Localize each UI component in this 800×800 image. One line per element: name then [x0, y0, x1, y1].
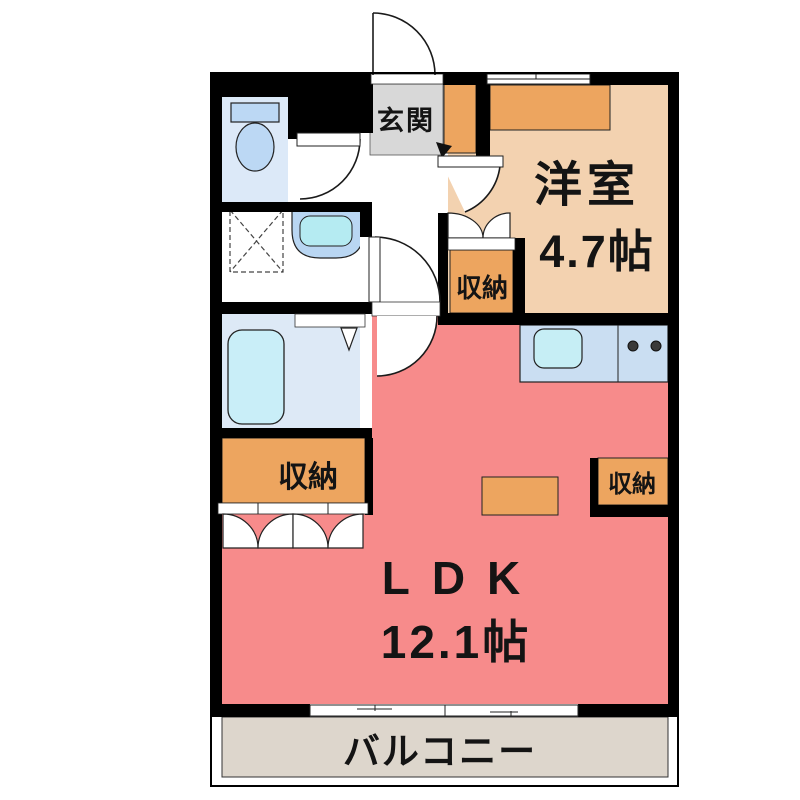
toilet-tank-icon	[231, 103, 279, 122]
kitchen-counter	[520, 325, 668, 382]
ldk-label: LDK	[382, 552, 543, 604]
closet-hall-label: 収納	[456, 273, 508, 303]
ldk-doorway	[372, 302, 440, 316]
wall	[590, 505, 668, 517]
washroom-door-leaf	[369, 237, 380, 302]
kitchen-sink-icon	[534, 329, 582, 368]
toilet-doorway	[288, 139, 300, 202]
kitchen-cabinet	[482, 477, 558, 515]
closet-west-folding-door	[218, 503, 368, 548]
western-room-label: 洋室	[534, 159, 640, 212]
balcony-label: バルコニー	[343, 731, 537, 772]
western-room-size-label: 4.7帖	[539, 226, 655, 277]
stove-burner-icon	[651, 341, 661, 351]
floor-plan-canvas: 玄関 洋室 4.7帖 収納 収納 収納 LDK 12.1帖 バルコニー	[0, 0, 800, 800]
western-room-door-leaf	[438, 156, 503, 167]
washbasin-bowl-icon	[300, 216, 352, 246]
closet-west-label: 収納	[278, 461, 338, 494]
toilet-bowl-icon	[236, 123, 274, 171]
wall-east	[668, 73, 678, 717]
wall	[288, 97, 373, 133]
wall-south	[578, 704, 668, 717]
wall	[440, 313, 668, 325]
wall	[211, 302, 372, 314]
entrance-doorway	[371, 74, 443, 84]
entrance-door-arc	[373, 13, 435, 75]
closet-kitchen-label: 収納	[608, 470, 656, 498]
window-north	[487, 74, 590, 84]
bathroom-door	[295, 314, 365, 327]
wall	[222, 202, 372, 212]
wall	[211, 428, 372, 438]
wall-south	[211, 704, 310, 717]
toilet-door-leaf	[297, 133, 360, 146]
wall	[513, 238, 525, 325]
wall	[476, 83, 490, 158]
stove-burner-icon	[628, 341, 638, 351]
ldk-size-label: 12.1帖	[381, 616, 532, 668]
western-room-wardrobe	[490, 85, 610, 130]
shoe-cabinet	[444, 84, 476, 153]
wall-north	[590, 73, 678, 85]
wall	[360, 212, 372, 237]
entrance-label: 玄関	[377, 105, 435, 136]
bathtub-icon	[228, 330, 284, 424]
wall	[211, 73, 373, 97]
wall-west	[211, 73, 222, 717]
floor-plan: 玄関 洋室 4.7帖 収納 収納 収納 LDK 12.1帖 バルコニー	[0, 0, 800, 800]
window-south	[310, 705, 578, 716]
